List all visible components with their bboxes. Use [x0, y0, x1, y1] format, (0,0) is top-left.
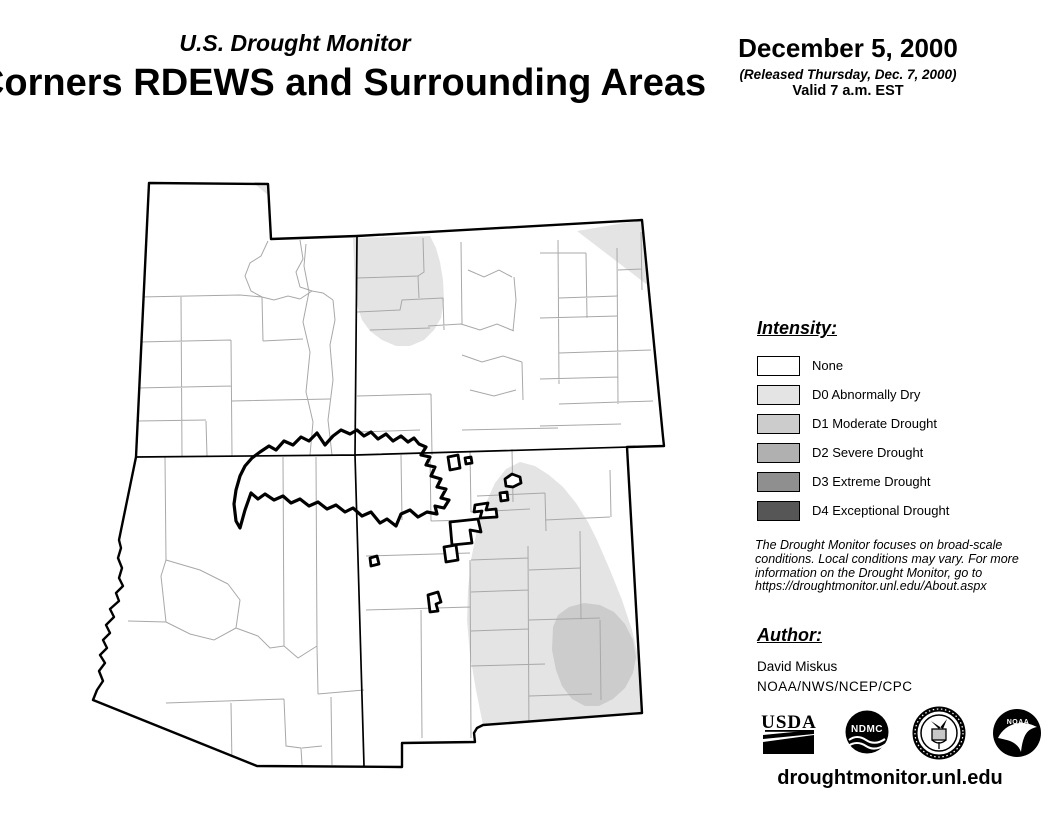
usda-logo-text: USDA: [761, 712, 817, 733]
legend-swatch-d1: [757, 414, 800, 434]
noaa-logo: NOAA: [992, 708, 1042, 758]
legend-label-d0: D0 Abnormally Dry: [800, 387, 920, 402]
intensity-legend: Intensity: None D0 Abnormally Dry D1 Mod…: [757, 318, 949, 525]
legend-label-d3: D3 Extreme Drought: [800, 474, 931, 489]
legend-label-d1: D1 Moderate Drought: [800, 416, 937, 431]
seal-shield-icon: [932, 729, 946, 740]
author-affiliation: NOAA/NWS/NCEP/CPC: [757, 677, 913, 697]
noaa-logo-text: NOAA: [1007, 719, 1030, 726]
legend-row-d1: D1 Moderate Drought: [757, 409, 949, 438]
legend-heading: Intensity:: [757, 318, 949, 339]
legend-swatch-none: [757, 356, 800, 376]
disclaimer-line: https://droughtmonitor.unl.edu/About.asp…: [755, 580, 1019, 594]
author-heading: Author:: [757, 625, 913, 646]
disclaimer-line: information on the Drought Monitor, go t…: [755, 567, 1019, 581]
legend-swatch-d4: [757, 501, 800, 521]
author-name: David Miskus: [757, 657, 913, 677]
disclaimer-text: The Drought Monitor focuses on broad-sca…: [755, 539, 1019, 594]
legend-label-none: None: [800, 358, 843, 373]
legend-row-d3: D3 Extreme Drought: [757, 467, 949, 496]
drought-region-d0-northeast-colorado-corner: [577, 220, 650, 287]
legend-swatch-d0: [757, 385, 800, 405]
commerce-seal-logo: [910, 706, 968, 762]
legend-row-d0: D0 Abnormally Dry: [757, 380, 949, 409]
legend-label-d4: D4 Exceptional Drought: [800, 503, 949, 518]
legend-row-d4: D4 Exceptional Drought: [757, 496, 949, 525]
usda-logo: USDA: [756, 706, 820, 764]
tribal-lands-boundary: [234, 430, 449, 528]
author-block: Author: David Miskus NOAA/NWS/NCEP/CPC: [757, 625, 913, 697]
legend-swatch-d2: [757, 443, 800, 463]
legend-row-none: None: [757, 351, 949, 380]
legend-label-d2: D2 Severe Drought: [800, 445, 923, 460]
footer-url: droughtmonitor.unl.edu: [740, 767, 1040, 790]
ndmc-logo-text: NDMC: [851, 724, 883, 735]
disclaimer-line: The Drought Monitor focuses on broad-sca…: [755, 539, 1019, 553]
legend-swatch-d3: [757, 472, 800, 492]
legend-row-d2: D2 Severe Drought: [757, 438, 949, 467]
disclaimer-line: conditions. Local conditions may vary. F…: [755, 553, 1019, 567]
drought-monitor-page: U.S. Drought Monitor Four Corners RDEWS …: [0, 0, 1056, 816]
ndmc-logo: NDMC: [844, 710, 890, 756]
